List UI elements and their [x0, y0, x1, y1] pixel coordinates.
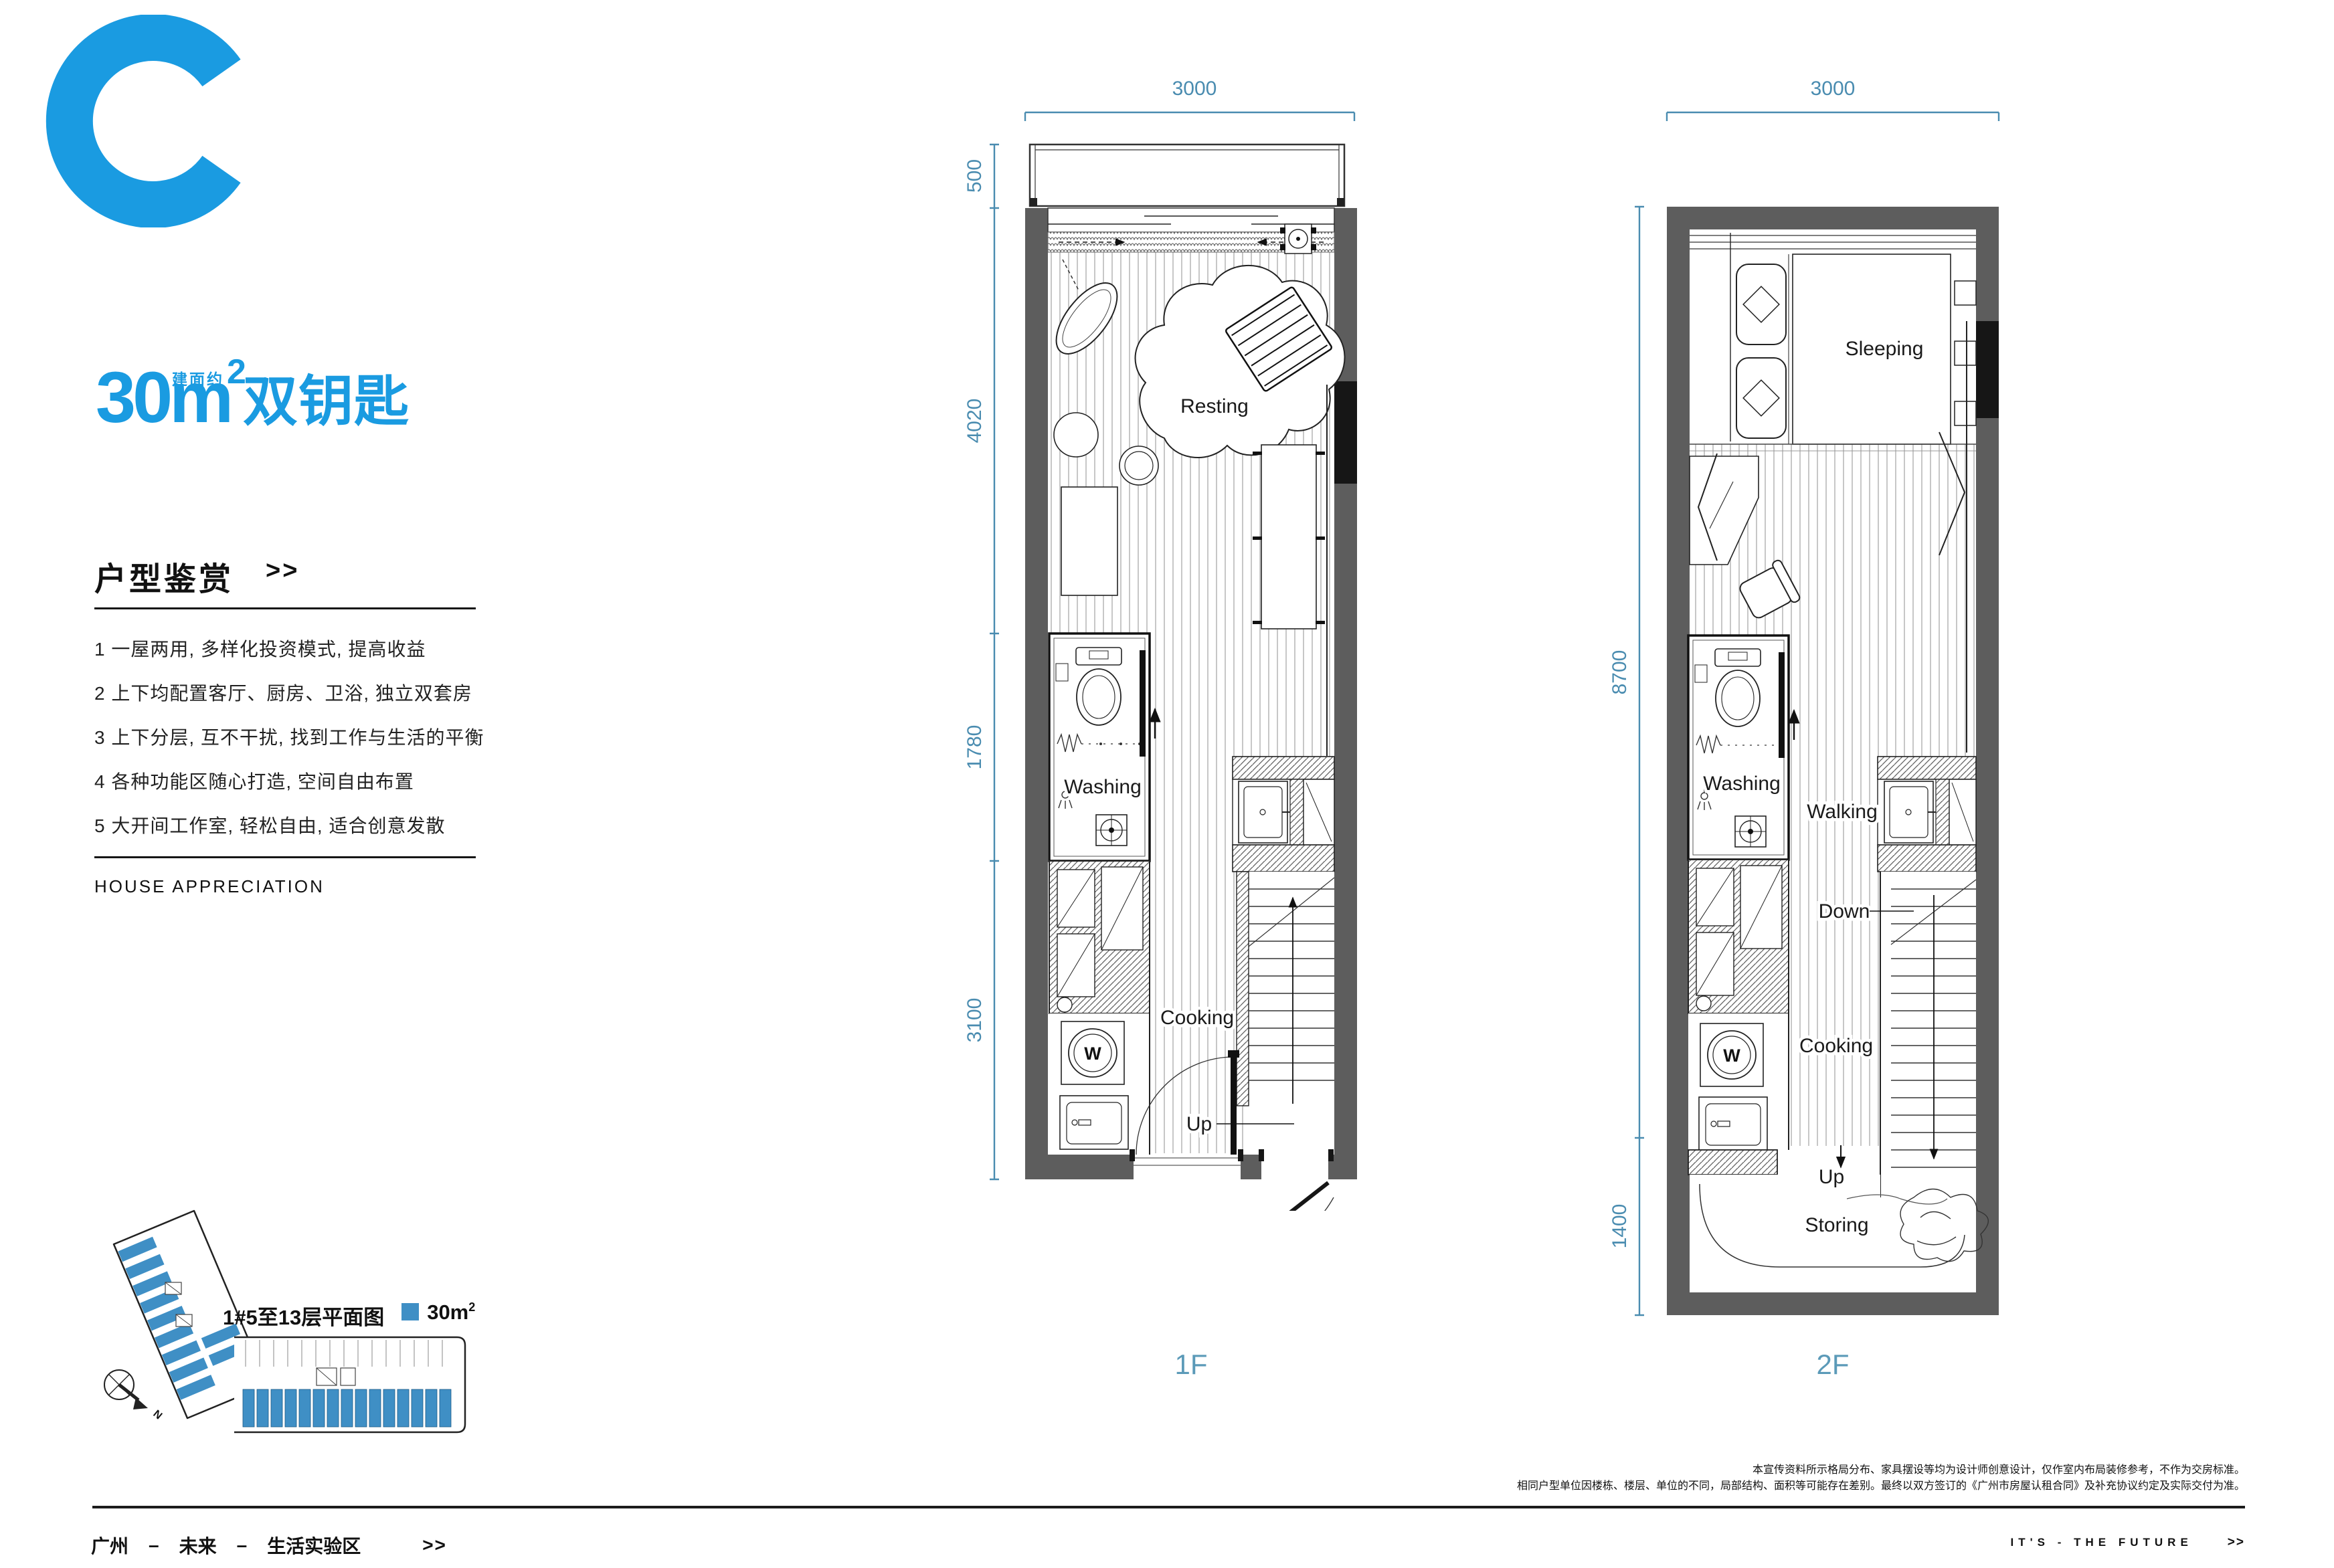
- room-label-up-2f: Up: [1819, 1166, 1844, 1188]
- footer-slogan: IT'S - THE FUTURE: [2011, 1536, 2193, 1549]
- washer-letter-1f: W: [1084, 1044, 1101, 1064]
- washing-room-1f: Washing: [1049, 633, 1155, 861]
- svg-text:8700: 8700: [1609, 650, 1631, 695]
- chevron-right-icon: >>: [2228, 1535, 2245, 1550]
- room-label-down: Down: [1819, 900, 1870, 922]
- floor-label-1f: 1F: [1025, 1349, 1357, 1381]
- room-label-storing: Storing: [1805, 1214, 1868, 1236]
- dim-top-1f: 3000: [1025, 78, 1354, 121]
- room-label-cooking-1f: Cooking: [1160, 1007, 1234, 1029]
- svg-text:3100: 3100: [964, 998, 986, 1043]
- svg-text:1400: 1400: [1609, 1204, 1631, 1249]
- footer-left: 广州 – 未来 – 生活实验区 >>: [91, 1532, 467, 1559]
- footer-mid: 未来: [179, 1532, 217, 1559]
- chevron-right-icon: >>: [422, 1535, 447, 1556]
- washer-letter-2f: W: [1723, 1046, 1740, 1066]
- feature-item: 1 一屋两用, 多样化投资模式, 提高收益: [94, 627, 484, 672]
- plate-right-wing: [234, 1337, 465, 1432]
- unit-type-letter-c: [39, 15, 268, 227]
- disclaimer-line-1: 本宣传资料所示格局分布、家具摆设等均为设计师创意设计，仅作室内布局装修参考，不作…: [1517, 1462, 2245, 1478]
- area-prefix: 建面约: [172, 367, 224, 389]
- room-label-sleeping: Sleeping: [1846, 338, 1924, 360]
- svg-text:N: N: [151, 1408, 164, 1422]
- area-title: 30m 建面约 2 双钥匙: [96, 344, 470, 428]
- feature-item: 5 大开间工作室, 轻松自由, 适合创意发散: [94, 804, 484, 848]
- legend-swatch-30sqm: [401, 1303, 419, 1320]
- area-subtitle: 双钥匙: [243, 375, 410, 429]
- section-subtitle-en: HOUSE APPRECIATION: [94, 876, 325, 897]
- section-heading: 户型鉴赏 >>: [94, 553, 299, 599]
- floorplan-2f: 3000 8700 1400: [1599, 60, 2028, 1351]
- dim-left-2f: 8700 1400: [1609, 207, 1644, 1315]
- footer-dash: –: [237, 1535, 248, 1556]
- room-label-washing-1f: Washing: [1064, 776, 1142, 798]
- vanity-block-1f: [1233, 757, 1334, 872]
- section-title: 户型鉴赏: [94, 553, 234, 599]
- plate-caption: 1#5至13层平面图 30m 2: [223, 1300, 475, 1331]
- dim-top-2f: 3000: [1667, 78, 1999, 121]
- disclaimer: 本宣传资料所示格局分布、家具摆设等均为设计师创意设计，仅作室内布局装修参考，不作…: [1517, 1462, 2245, 1494]
- washing-room-2f: Washing: [1688, 635, 1794, 860]
- footer-divider: [92, 1506, 2245, 1508]
- room-label-up-1f: Up: [1186, 1113, 1212, 1135]
- footer-city: 广州: [91, 1532, 128, 1559]
- feature-item: 3 上下分层, 互不干扰, 找到工作与生活的平衡: [94, 716, 484, 760]
- svg-text:4020: 4020: [964, 399, 986, 444]
- feature-item: 2 上下均配置客厅、厨房、卫浴, 独立双套房: [94, 672, 484, 716]
- desk-1f: [1061, 487, 1117, 595]
- floor-label-2f: 2F: [1667, 1349, 1999, 1381]
- footer-dash: –: [149, 1535, 159, 1556]
- room-label-resting: Resting: [1180, 395, 1249, 417]
- svg-text:3000: 3000: [1811, 78, 1856, 100]
- side-table: [1119, 446, 1158, 485]
- closet-1f: [1049, 861, 1150, 1013]
- door-leaf-washing: [1140, 650, 1146, 757]
- stool: [1054, 413, 1098, 457]
- room-label-washing-2f: Washing: [1703, 773, 1781, 795]
- floor-drain: [1096, 815, 1127, 846]
- room-label-cooking-2f: Cooking: [1799, 1035, 1873, 1057]
- legend-value: 30m: [427, 1300, 468, 1325]
- divider-top: [94, 607, 476, 609]
- kitchen-1f: W: [1049, 1013, 1150, 1155]
- svg-text:500: 500: [964, 159, 986, 193]
- room-label-walking: Walking: [1807, 801, 1878, 823]
- curtain-box-2f: [1690, 235, 1976, 249]
- floorplan-1f: 3000 500 4020 1780 3100: [964, 60, 1392, 1211]
- chevron-right-icon: >>: [266, 557, 299, 585]
- svg-text:3000: 3000: [1172, 78, 1217, 100]
- closet-2f: [1688, 860, 1789, 1013]
- feature-list: 1 一屋两用, 多样化投资模式, 提高收益 2 上下均配置客厅、厨房、卫浴, 独…: [94, 627, 484, 848]
- staircase-2f: [1880, 872, 1976, 1197]
- dining-table: [1253, 445, 1325, 629]
- disclaimer-line-2: 相同户型单位因楼栋、楼层、单位的不同，局部结构、面积等可能存在差别。最终以双方签…: [1517, 1478, 2245, 1494]
- legend-superscript: 2: [468, 1300, 475, 1314]
- staircase-1f: [1237, 872, 1334, 1155]
- kitchen-2f: W: [1688, 1013, 1789, 1175]
- vanity-block-2f: [1878, 757, 1976, 872]
- feature-item: 4 各种功能区随心打造, 空间自由布置: [94, 760, 484, 804]
- plate-caption-text: 1#5至13层平面图: [223, 1300, 384, 1331]
- compass-icon: N: [104, 1370, 164, 1422]
- plant-icon: [1900, 1189, 1988, 1262]
- svg-text:1780: 1780: [964, 725, 986, 770]
- ceiling-unit: [1280, 224, 1316, 254]
- balcony-1f: [1030, 144, 1344, 206]
- divider-bottom: [94, 856, 476, 858]
- footer-area: 生活实验区: [267, 1532, 361, 1559]
- dim-left-1f: 500 4020 1780 3100: [964, 144, 999, 1179]
- footer-right: IT'S - THE FUTURE >>: [2011, 1535, 2245, 1550]
